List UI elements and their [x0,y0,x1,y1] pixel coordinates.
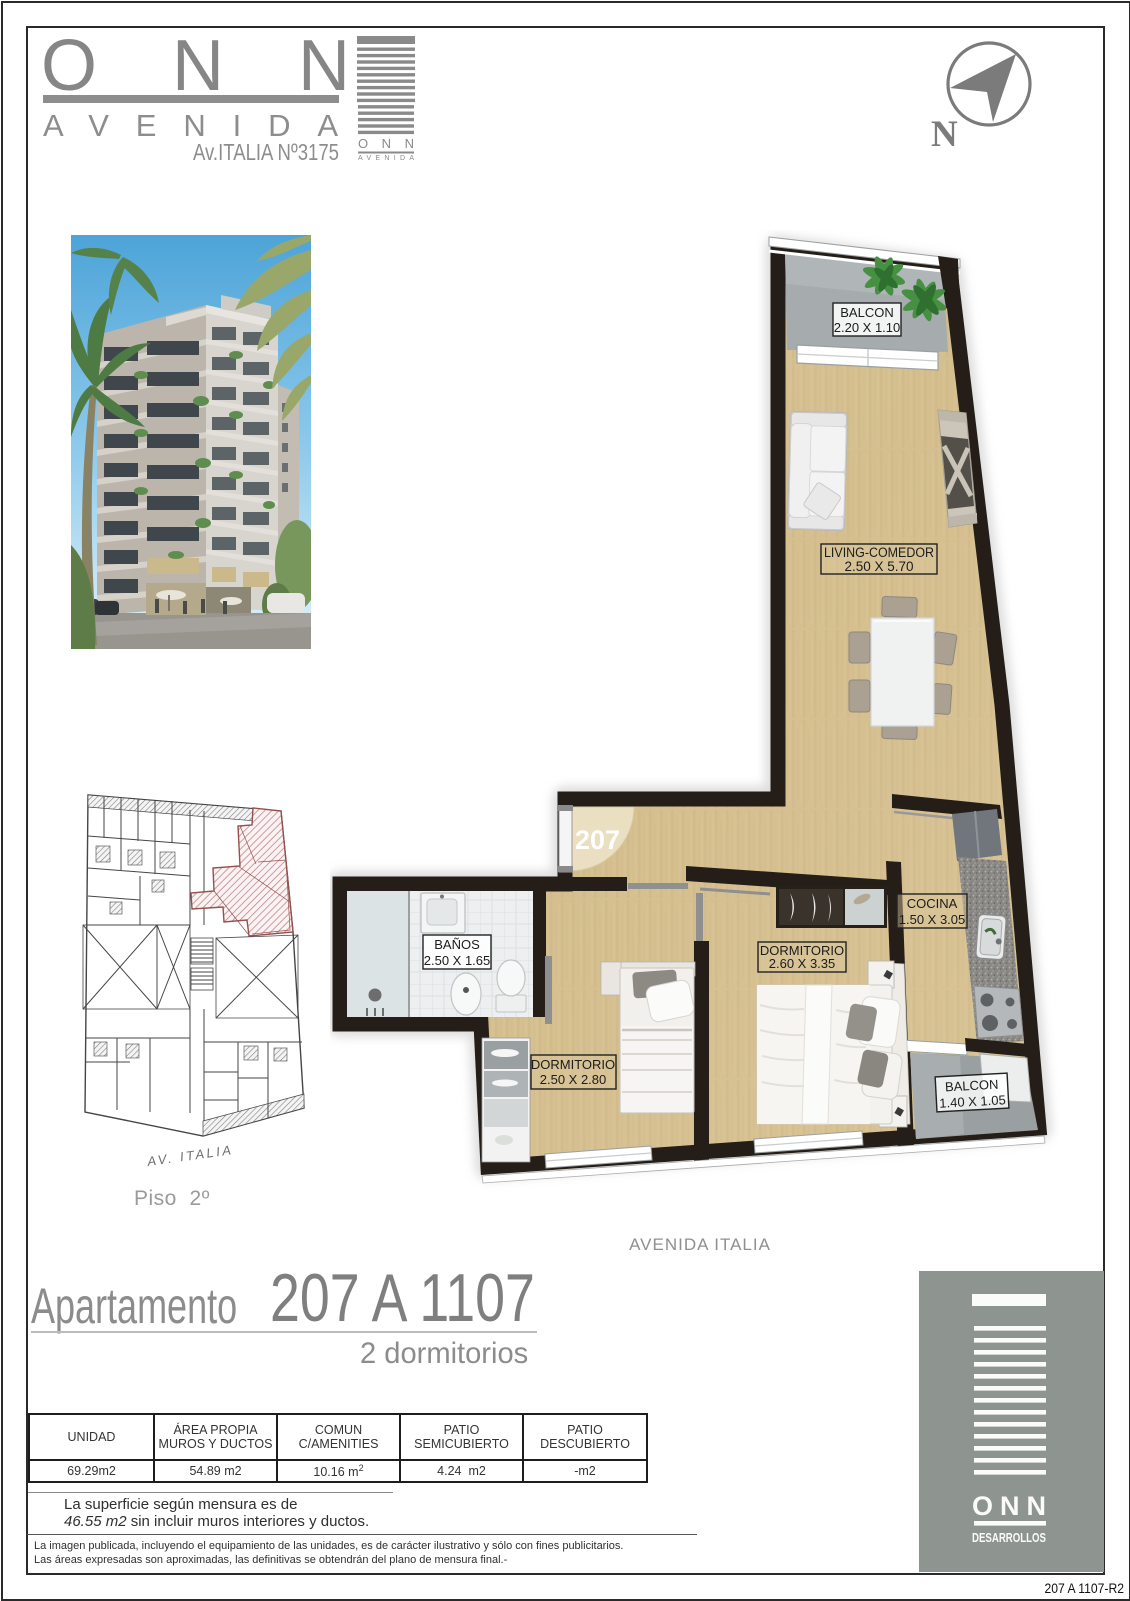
svg-text:DESARROLLOS: DESARROLLOS [972,1531,1046,1545]
svg-text:AVENIDA: AVENIDA [43,108,338,143]
svg-text:2.60 X 3.35: 2.60 X 3.35 [769,956,836,971]
svg-text:BALCON: BALCON [840,305,893,320]
svg-text:N: N [298,30,350,106]
svg-text:2.50 X 1.65: 2.50 X 1.65 [424,953,491,968]
svg-text:207: 207 [575,825,620,855]
svg-text:COCINA: COCINA [907,896,958,911]
svg-text:AVENIDA: AVENIDA [358,155,414,161]
svg-text:ONN: ONN [972,1491,1046,1521]
svg-text:2.20 X 1.10: 2.20 X 1.10 [834,320,901,335]
svg-text:Av.ITALIA Nº3175: Av.ITALIA Nº3175 [193,139,339,165]
svg-text:O: O [41,30,97,106]
svg-text:BAÑOS: BAÑOS [434,937,480,952]
svg-text:LIVING-COMEDOR: LIVING-COMEDOR [824,545,934,560]
svg-text:2.50 X 5.70: 2.50 X 5.70 [844,559,913,574]
svg-text:AV. ITALIA: AV. ITALIA [145,1142,234,1169]
svg-text:N: N [172,30,224,106]
svg-text:2.50 X 2.80: 2.50 X 2.80 [540,1072,607,1087]
svg-text:ONN: ONN [358,136,414,151]
svg-text:N: N [931,114,958,155]
svg-text:BALCON: BALCON [945,1077,999,1095]
svg-text:1.50 X 3.05: 1.50 X 3.05 [899,912,966,927]
svg-text:DORMITORIO: DORMITORIO [531,1057,615,1072]
